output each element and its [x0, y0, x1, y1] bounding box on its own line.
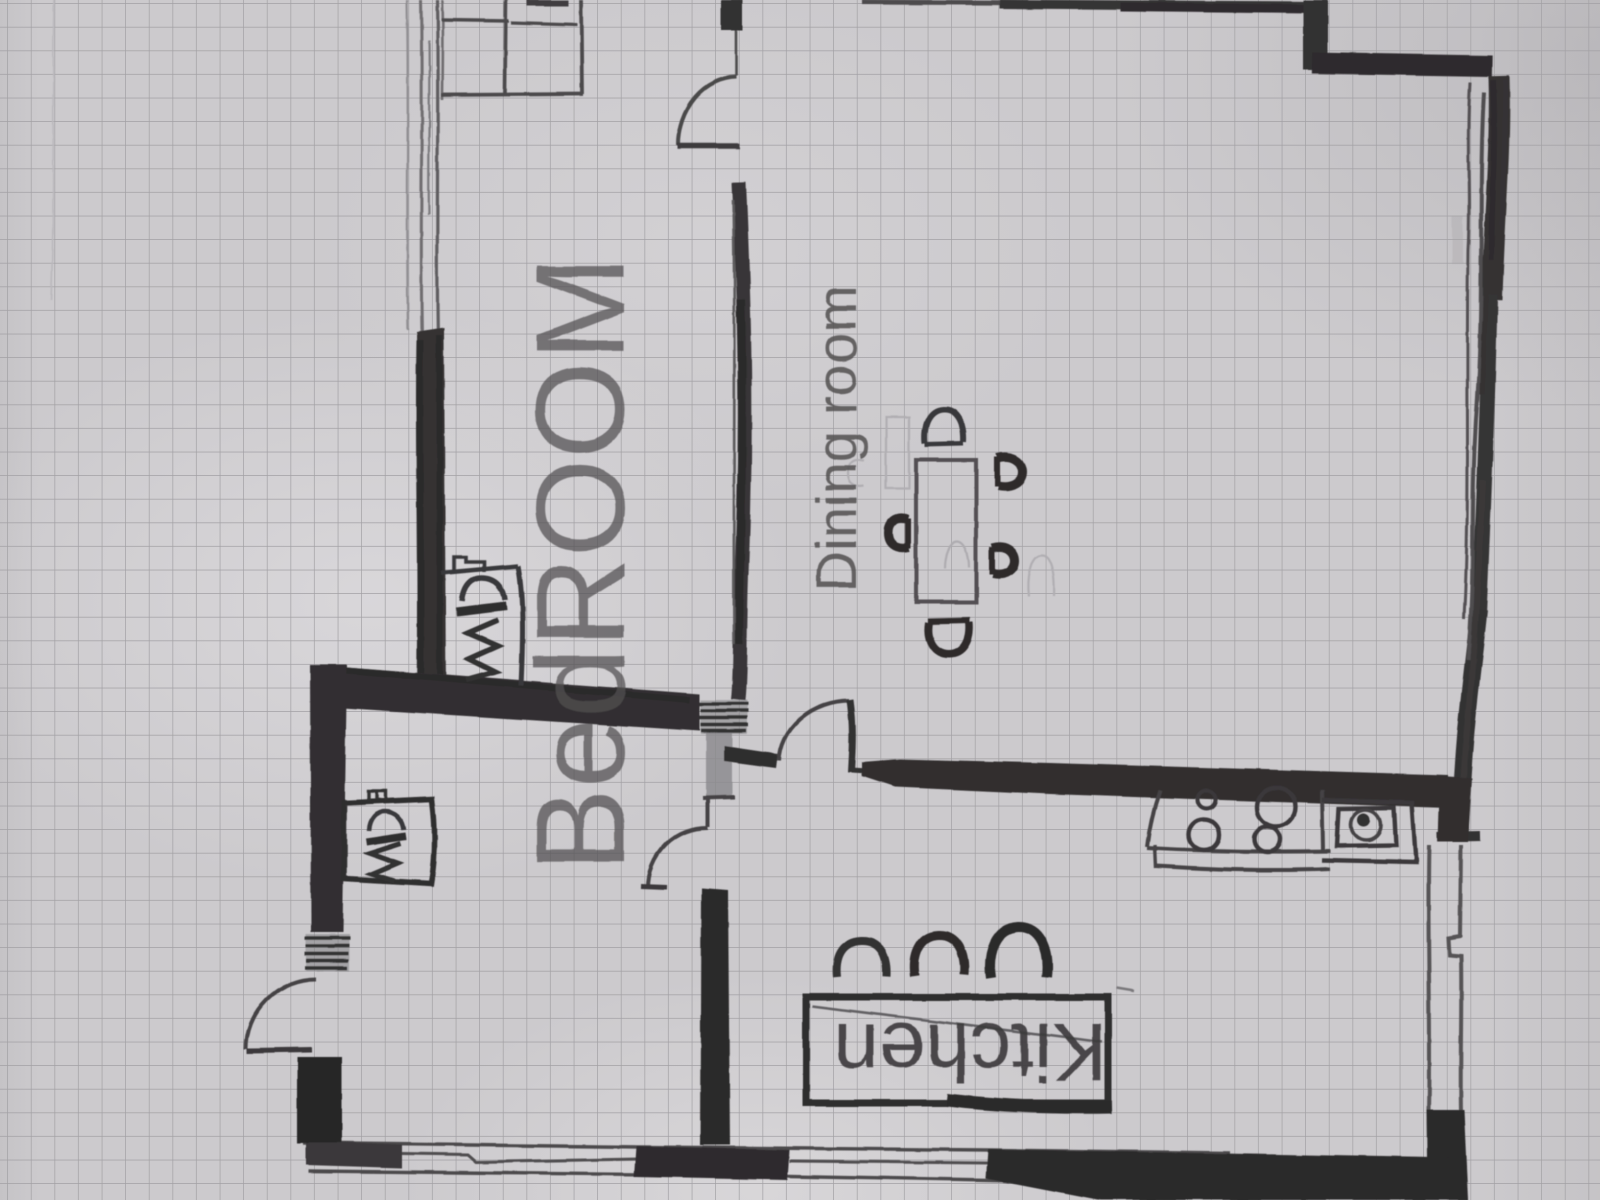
svg-text:BedROOM: BedROOM: [510, 256, 651, 872]
svg-text:Dining room: Dining room: [805, 285, 869, 592]
svg-text:Kitchen: Kitchen: [833, 1006, 1107, 1097]
